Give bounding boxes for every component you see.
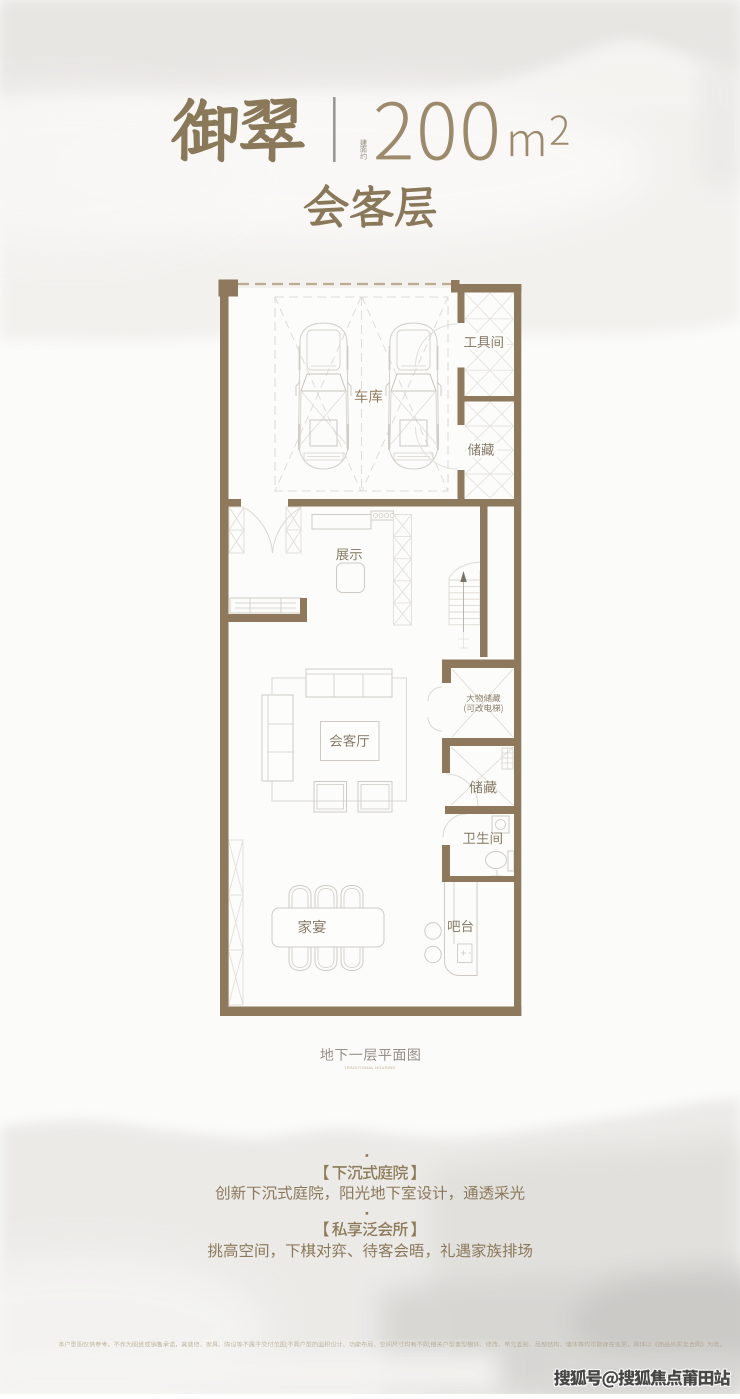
svg-text:TRADITIONAL HOUSING: TRADITIONAL HOUSING [344,1065,395,1070]
